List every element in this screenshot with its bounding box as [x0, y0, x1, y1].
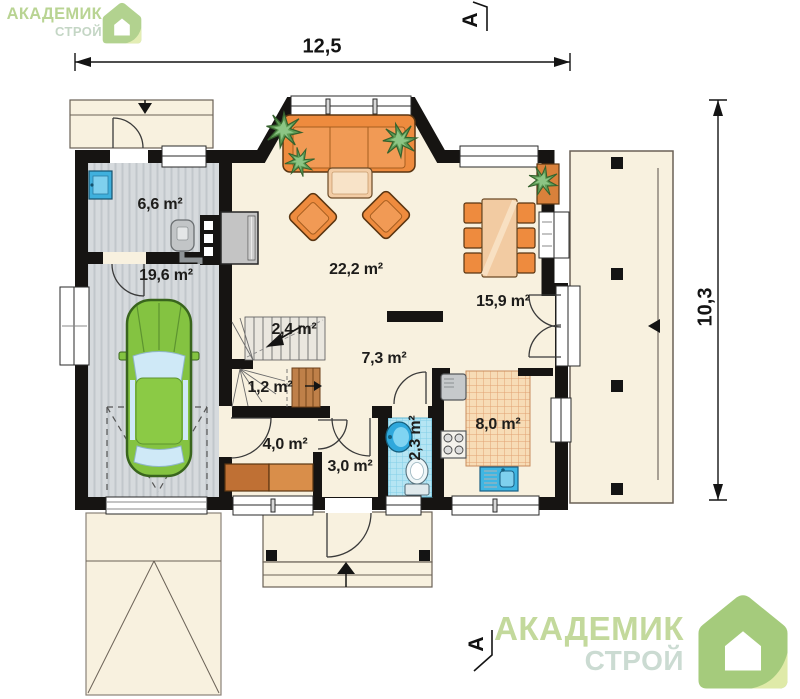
coffee-table — [328, 168, 372, 198]
logo-text-line1: АКАДЕМИК — [2, 6, 102, 23]
window-bathroom-south — [386, 496, 421, 515]
window-wardrobe-south — [233, 496, 313, 515]
terrace-post — [611, 157, 623, 169]
porch-post — [266, 550, 277, 561]
garage-door-opening — [106, 497, 207, 514]
room-label-vestibule: 3,0 m² — [327, 458, 372, 476]
toilet — [405, 458, 429, 495]
room-label-utility: 6,6 m² — [137, 196, 182, 214]
dimension-width-label: 12,5 — [303, 36, 342, 59]
terrace-post — [611, 380, 623, 392]
terrace-post — [611, 268, 623, 280]
logo-bottom-right: АКАДЕМИК СТРОЙ — [448, 612, 684, 675]
room-label-garage: 19,6 m² — [139, 267, 193, 285]
room-label-hall: 7,3 m² — [361, 350, 406, 368]
room-label-stairs-upper: 2,4 m² — [271, 321, 316, 339]
entry-porch-bottom — [263, 512, 432, 587]
room-label-wardrobe: 4,0 m² — [262, 436, 307, 454]
floor-plan-page: 6,6 m² 19,6 m² 22,2 m² 15,9 m² 2,4 m² 1,… — [0, 0, 800, 699]
terrace-door-frame — [556, 286, 580, 366]
window-kitchen-east — [551, 398, 571, 442]
window-dining-top — [460, 146, 538, 167]
logo-house-icon — [99, 1, 145, 47]
logo-text-line1: АКАДЕМИК — [448, 612, 684, 645]
entry-porch-top — [70, 100, 213, 148]
window-kitchen-south — [452, 496, 539, 515]
utility-sink — [89, 171, 112, 199]
logo-house-icon — [690, 591, 796, 697]
fridge — [441, 374, 466, 400]
room-label-dining-room: 15,9 m² — [476, 293, 530, 311]
logo-top-left: АКАДЕМИК СТРОЙ — [2, 6, 102, 38]
logo-text-line2: СТРОЙ — [2, 25, 102, 38]
logo-text-line2: СТРОЙ — [448, 647, 684, 675]
dimension-height-label: 10,3 — [695, 288, 718, 327]
porch-post — [419, 550, 430, 561]
room-label-bathroom: 2,3 m² — [407, 415, 425, 460]
dining-set — [464, 199, 535, 277]
car-icon — [119, 300, 199, 476]
window-utility-top — [162, 146, 206, 167]
front-door-opening — [325, 498, 372, 513]
window-bay-living — [291, 96, 411, 117]
room-label-kitchen: 8,0 m² — [475, 416, 520, 434]
kitchen-sink — [480, 467, 518, 491]
stove — [441, 431, 466, 458]
chimney — [200, 215, 220, 265]
room-label-living-room: 22,2 m² — [329, 261, 383, 279]
terrace — [570, 151, 673, 503]
fireplace — [221, 212, 258, 264]
section-letter-top: А — [459, 12, 483, 27]
wardrobe-cabinets — [225, 464, 313, 491]
driveway — [86, 513, 221, 695]
window-garage-west — [60, 287, 89, 365]
room-label-stairs-lower: 1,2 m² — [247, 379, 292, 397]
window-dining-east — [539, 212, 569, 258]
terrace-post — [611, 483, 623, 495]
porch-door-opening — [110, 150, 148, 163]
